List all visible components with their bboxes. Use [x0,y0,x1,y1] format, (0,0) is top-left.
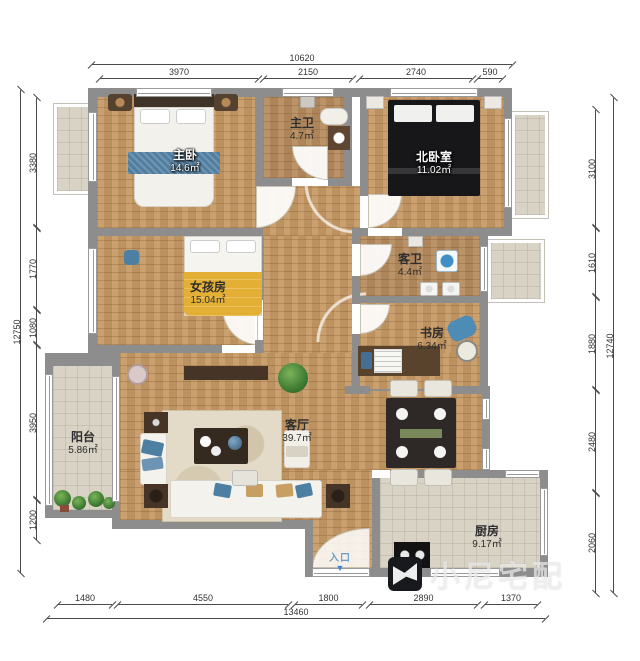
window-kitchen-top [505,470,540,478]
dim-top-seg: 2150 [264,78,352,79]
dining-chair [424,380,452,397]
bathtub-counter [320,108,348,125]
table-plate [396,446,408,458]
wall-segment [255,340,263,353]
wall-segment [504,88,512,118]
plant-small [88,491,104,507]
floor-balcony [53,366,112,510]
pillow-tan [275,483,293,498]
wall-segment [372,478,380,569]
tv-console [184,366,268,380]
wall-segment [88,88,97,112]
window-north-top [390,88,478,97]
table-plate [200,436,211,447]
vanity-sink [328,126,350,150]
dim-right-seg: 1610 [595,228,596,297]
dining-chair [424,469,452,486]
desk-papers [374,349,402,373]
entrance-arrow-icon: ▼ [314,564,366,572]
blanket-yellow [184,272,262,316]
watermark-text: 小尼宅配 [430,552,566,596]
dim-top-seg: 2740 [360,78,472,79]
wall-segment [90,345,222,353]
pillow [226,240,256,253]
wall-segment [482,420,490,448]
wall-segment [540,470,548,488]
cabinet [408,236,423,247]
table-plate [434,446,446,458]
plant-small [72,496,86,510]
window-hall-top [282,88,334,97]
ottoman [232,470,258,486]
dining-chair [390,469,418,486]
dim-right-overall: 12740 [613,98,614,593]
washing-machine [436,250,458,272]
toilet [300,96,315,108]
dim-right-seg: 2060 [595,493,596,593]
wall-segment [90,228,263,236]
nightstand [484,96,502,109]
chaise-cushion [286,446,308,457]
dim-bottom-seg: 2890 [370,604,477,605]
nightstand [366,96,384,109]
nightstand [214,94,238,111]
sink [420,282,438,296]
side-table [144,484,168,508]
dim-bottom-seg: 1370 [485,604,537,605]
wall-segment [88,182,97,248]
window-balcony-left [45,374,53,506]
wall-segment [112,353,120,376]
pillow [436,105,474,122]
wall-segment [504,208,512,236]
dining-chair [390,380,418,397]
wall-segment [480,236,488,246]
stool-round [456,340,478,362]
dim-left-seg: 1200 [36,500,37,540]
floor-plan: 主卧 14.6㎡ 主卫 4.7㎡ 北卧室 11.02㎡ 女孩房 15.04㎡ 客… [0,0,640,661]
watermark-logo-icon [388,557,422,591]
wall-segment [263,178,292,186]
watermark: 小尼宅配 [388,552,566,596]
entrance-label: 入口 ▼ [314,549,366,572]
pillow [140,109,170,124]
window-north-bay [504,118,512,208]
wall-segment [352,236,360,244]
dim-right-seg: 2480 [595,390,596,493]
table-plate [396,408,408,420]
side-table [326,484,350,508]
sink [442,282,460,296]
dim-right-seg: 3100 [595,110,596,228]
dim-left-seg: 3950 [36,345,37,500]
dim-bottom-seg: 1800 [295,604,362,605]
window-balcony-slider [112,376,120,502]
window-master-top [136,88,212,97]
window-dining-right-2 [482,448,490,470]
wall-segment [480,292,488,393]
wall-segment [402,228,512,236]
table-plate [434,408,446,420]
window-girls-left [88,248,97,334]
dim-bottom-overall: 13460 [47,618,545,619]
wall-segment [352,276,360,304]
wall-segment [255,88,263,186]
window-dining-right-1 [482,398,490,420]
blanket-fold [388,168,480,174]
wall-segment [45,353,53,374]
wall-segment [352,296,488,303]
dim-top-seg: 3970 [100,78,258,79]
plant-pot [60,505,69,512]
plant-large [278,363,308,393]
pillow [176,109,206,124]
service-platform [488,240,544,302]
dim-top-seg: 590 [478,78,502,79]
dim-left-seg: 1770 [36,228,37,310]
dim-top-overall: 10620 [92,64,512,65]
table-runner [400,429,442,438]
pillow [394,105,432,122]
dim-bottom-seg: 1480 [58,604,112,605]
wall-segment [45,510,120,518]
hallway-arc-decor [300,182,356,234]
pillow [190,240,220,253]
chair-blue [124,250,139,265]
dim-right-seg: 1880 [595,297,596,390]
desk-chair [361,352,372,369]
bed-runner-blue [128,152,220,174]
pillow-blue [213,483,232,499]
wall-segment [352,228,368,236]
dim-left-seg: 1080 [36,310,37,345]
bay-window-sill-right [512,112,548,218]
dim-bottom-seg: 4550 [118,604,288,605]
corner-table [144,412,168,433]
nightstand [108,94,132,111]
dim-left-seg: 3380 [36,98,37,228]
table-flowers [228,436,242,450]
window-kitchen-right [540,488,548,556]
table-plate [211,446,221,456]
window-platform [480,246,488,292]
dim-left-overall: 12750 [20,90,21,573]
wall-segment [45,353,120,366]
window-master-bay [88,112,97,182]
round-chair [127,364,148,385]
